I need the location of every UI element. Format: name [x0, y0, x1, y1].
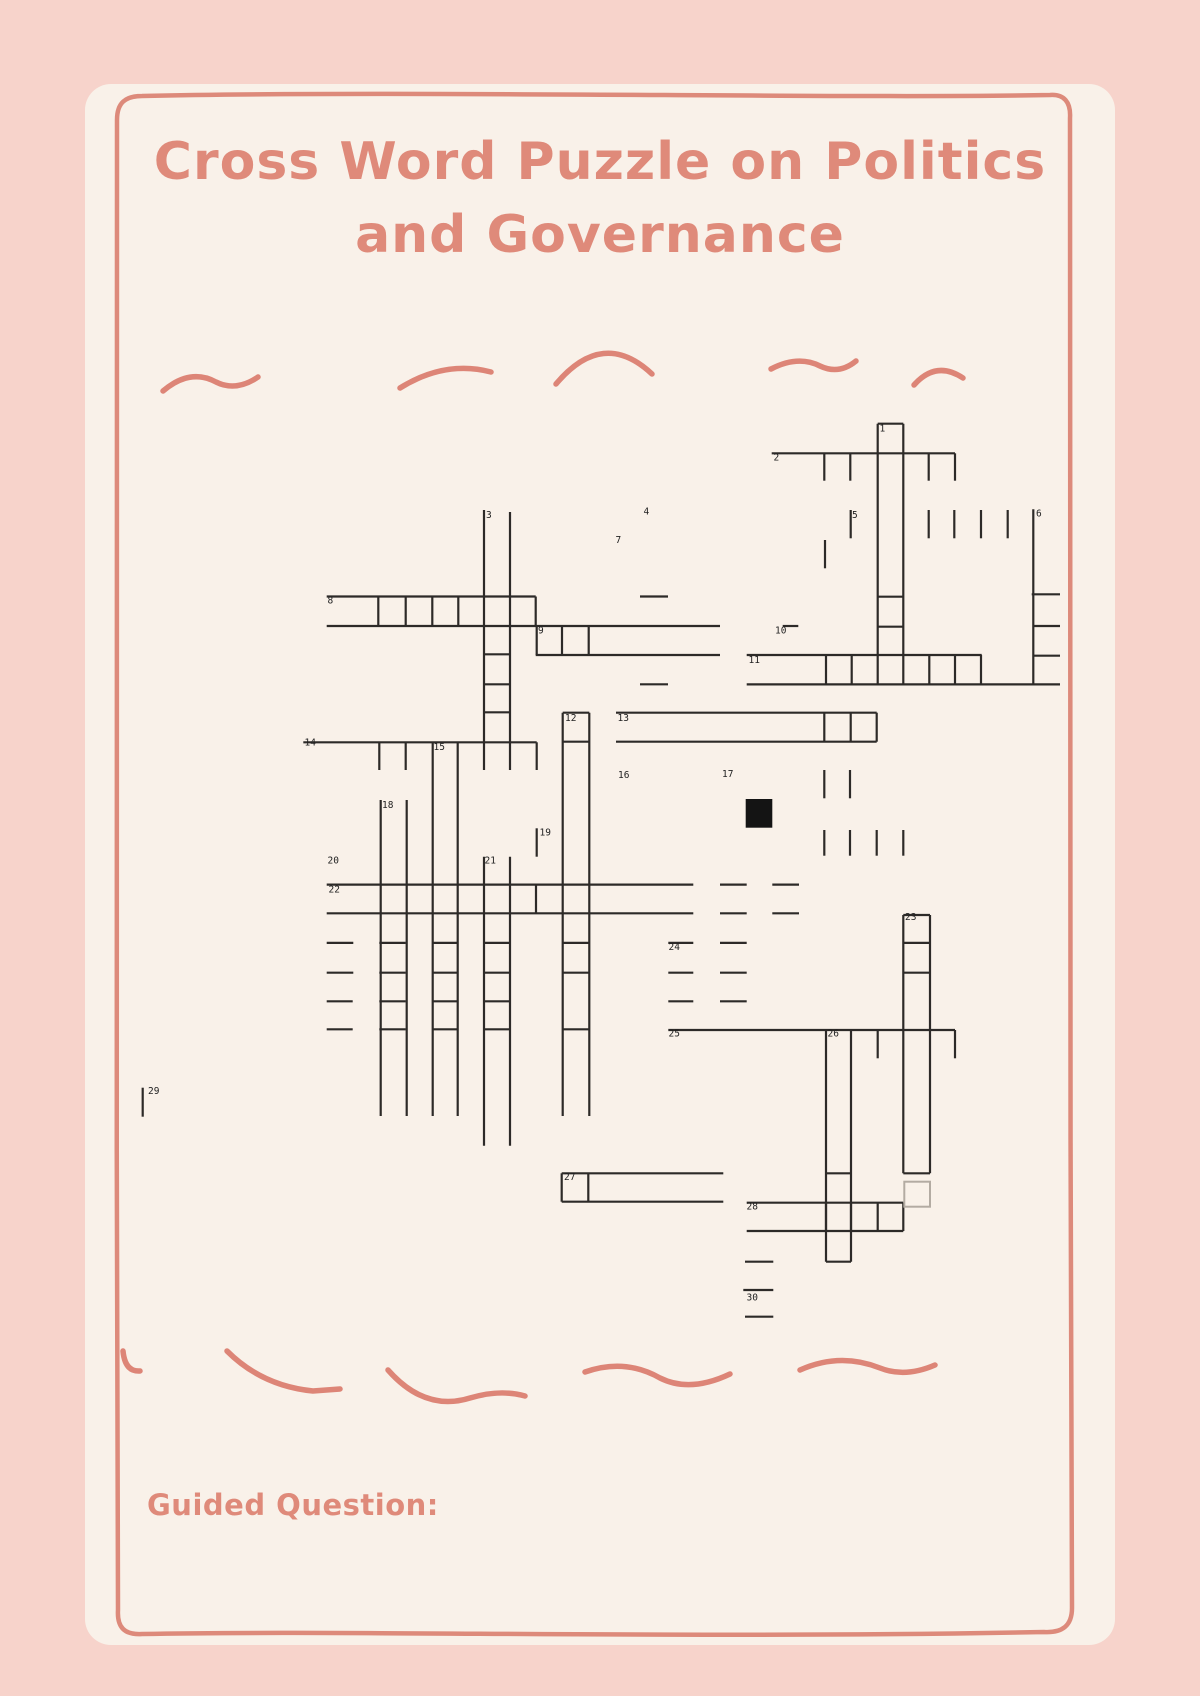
- clue-number-19: 19: [540, 827, 552, 838]
- crossword-grid[interactable]: 1234567891011121314151617181920212223242…: [0, 0, 1200, 1696]
- clue-number-30: 30: [747, 1292, 759, 1303]
- guided-question-label: Guided Question:: [147, 1488, 439, 1522]
- clue-number-18: 18: [382, 800, 394, 811]
- clue-number-26: 26: [828, 1028, 840, 1039]
- clue-number-12: 12: [565, 713, 576, 724]
- clue-number-5: 5: [852, 510, 858, 521]
- clue-number-1: 1: [880, 423, 886, 434]
- clue-number-21: 21: [485, 855, 497, 866]
- clue-number-4: 4: [644, 506, 650, 517]
- clue-number-3: 3: [486, 510, 492, 521]
- clue-number-14: 14: [305, 737, 317, 748]
- clue-number-29: 29: [148, 1086, 160, 1097]
- clue-number-11: 11: [749, 655, 761, 666]
- grid-clue-numbers: 1234567891011121314151617181920212223242…: [148, 423, 1042, 1303]
- clue-number-15: 15: [434, 742, 445, 753]
- clue-number-25: 25: [669, 1028, 680, 1039]
- clue-number-6: 6: [1036, 508, 1042, 519]
- clue-number-24: 24: [669, 942, 681, 953]
- blocked-cell: [746, 799, 773, 828]
- grid-lines: [143, 424, 1060, 1317]
- clue-number-8: 8: [328, 595, 334, 606]
- clue-number-28: 28: [747, 1201, 759, 1212]
- gray-cell: [904, 1182, 930, 1207]
- worksheet-page: Cross Word Puzzle on Politics and Govern…: [0, 0, 1200, 1696]
- clue-number-10: 10: [775, 625, 787, 636]
- clue-number-22: 22: [329, 884, 340, 895]
- clue-number-23: 23: [905, 912, 916, 923]
- clue-number-16: 16: [618, 770, 630, 781]
- clue-number-7: 7: [616, 535, 622, 546]
- clue-number-2: 2: [774, 452, 780, 463]
- clue-number-9: 9: [538, 625, 544, 636]
- clue-number-17: 17: [722, 769, 733, 780]
- clue-number-27: 27: [564, 1172, 575, 1183]
- clue-number-20: 20: [328, 855, 340, 866]
- clue-number-13: 13: [618, 713, 629, 724]
